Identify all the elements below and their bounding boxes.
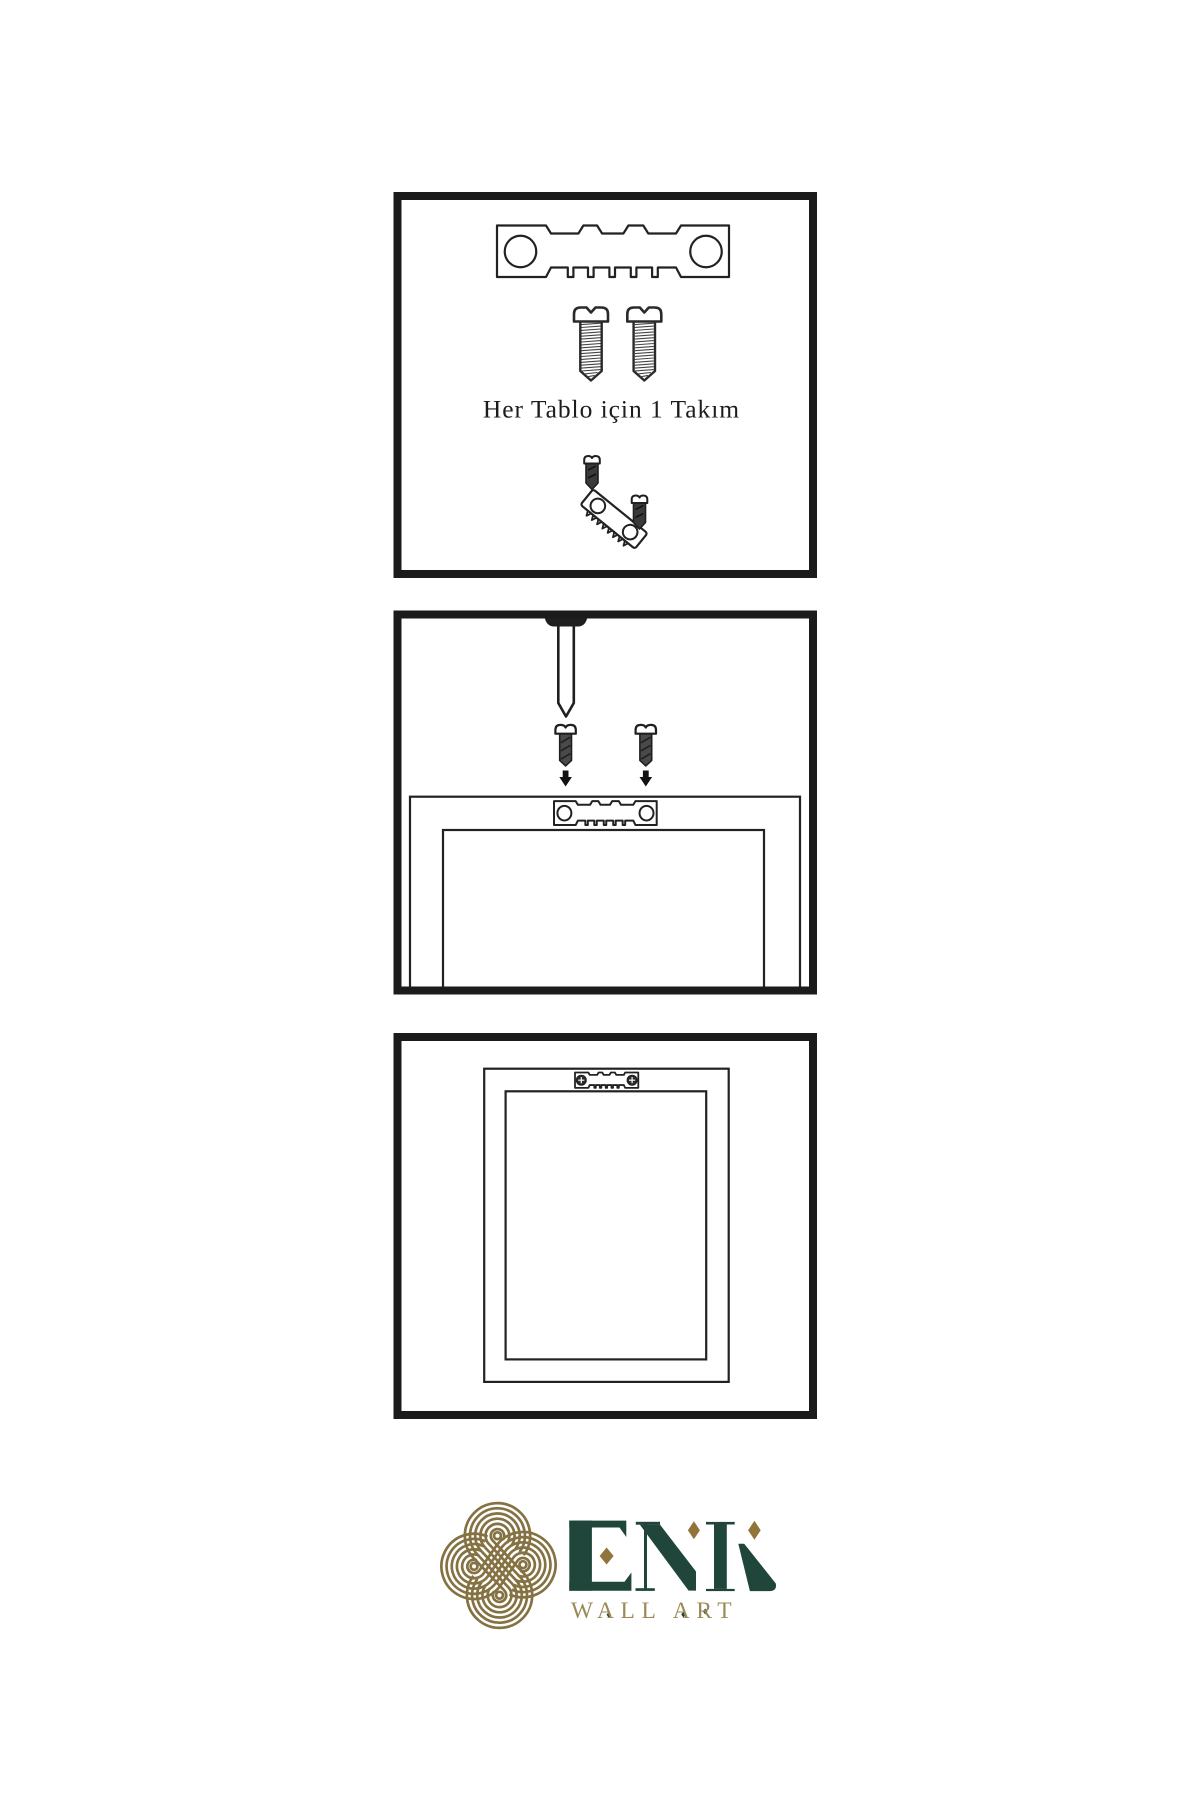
svg-text:WALL ART: WALL ART <box>571 1598 738 1624</box>
svg-text:Her Tablo için 1 Takım: Her Tablo için 1 Takım <box>483 395 740 424</box>
